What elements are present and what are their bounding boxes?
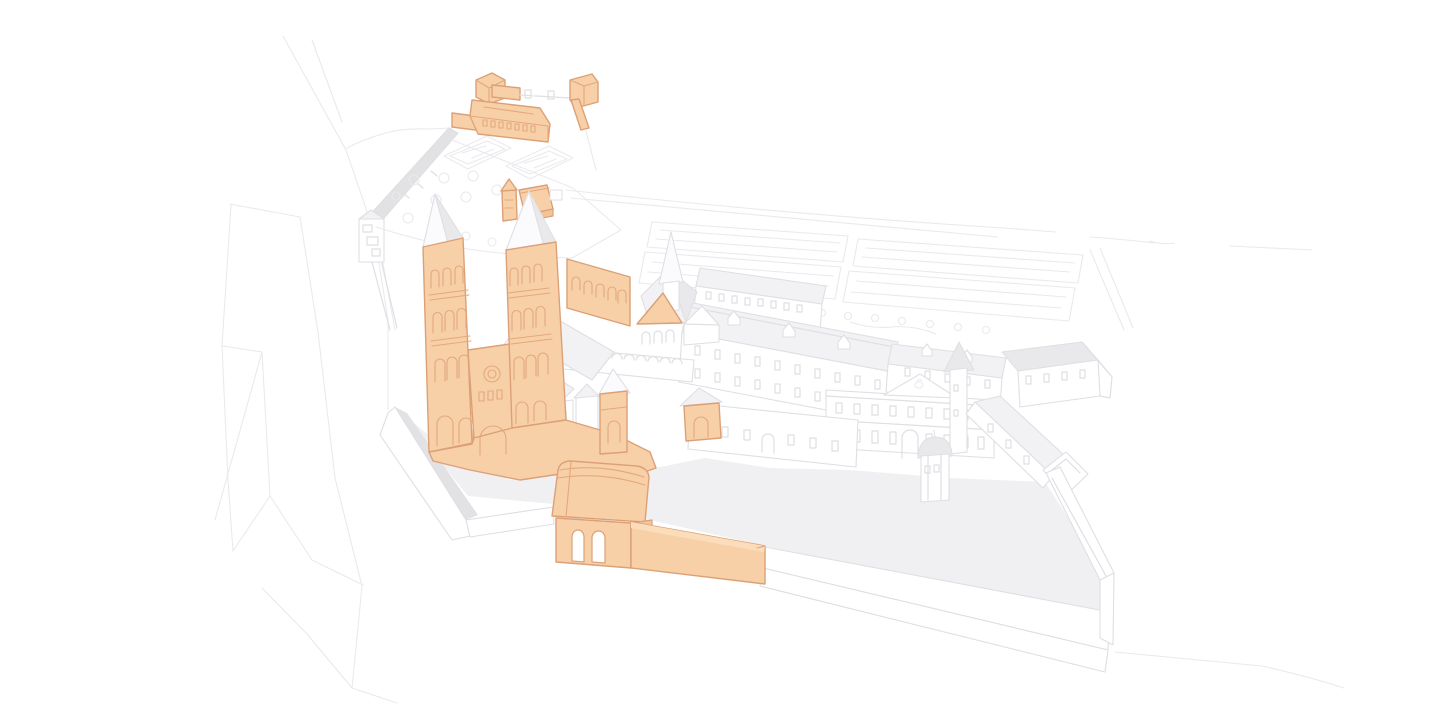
cliff-outlines — [215, 36, 452, 703]
abbey-illustration — [0, 0, 1440, 711]
south-orange-house[interactable] — [680, 388, 722, 441]
terrace-garden-parterres — [376, 136, 621, 258]
upper-courtyard-buildings[interactable] — [452, 73, 598, 170]
abbey-map-stage — [0, 0, 1440, 711]
southeast-chapel[interactable] — [598, 369, 630, 454]
